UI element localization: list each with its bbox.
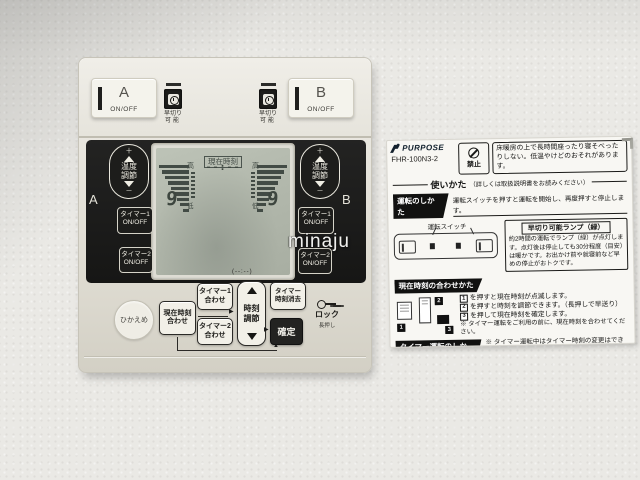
- operation-section: 運転のしかた 運転スイッチを押すと運転を開始し、再度押すと停止します。 運転スイ…: [393, 190, 628, 274]
- up-triangle-icon: [124, 156, 134, 162]
- key-icon: [317, 299, 337, 308]
- minus-label: －: [126, 188, 133, 195]
- panel-top-strip: A ON/OFF 早切り 可能 早切り: [79, 58, 371, 138]
- timer1-set-button[interactable]: タイマー1 合わせ: [197, 283, 233, 310]
- clock-icon: [263, 94, 274, 105]
- low-label-right: 低: [252, 200, 259, 210]
- temp-adjust-a-rocker[interactable]: ＋ 温度 調節 －: [109, 144, 149, 199]
- early-off-caption: 早切り 可能: [259, 111, 277, 125]
- zone-b-label: B: [342, 192, 351, 207]
- up-triangle-icon: [247, 287, 257, 294]
- flow-arrow-right-icon: ▶: [264, 326, 269, 333]
- mini-lamp: [430, 244, 435, 250]
- flow-arrow-right-icon: ▶: [229, 308, 234, 315]
- early-off-lamp-box: 早切り可能ランプ（緑） 約2時間の運転でランプ（緑）が点灯します。点灯後は停止し…: [504, 218, 628, 272]
- power-a-button[interactable]: A ON/OFF: [91, 78, 157, 118]
- zone-a-label: A: [89, 192, 98, 207]
- mini-lamp: [456, 243, 461, 249]
- timer1-onoff-b-button[interactable]: タイマー1 ON/OFF: [298, 207, 334, 234]
- time-setting-title: 現在時刻の合わせかた: [394, 278, 482, 294]
- temp-adjust-label: 温度 調節: [121, 163, 137, 181]
- early-off-caption: 早切り 可能: [164, 111, 182, 125]
- control-dark-area: 現在時刻 高 --:-- 高 低 9: [86, 140, 366, 283]
- hikaeme-button[interactable]: ひかえめ: [114, 300, 154, 340]
- temp-level-b: 9: [266, 188, 279, 210]
- power-b-button[interactable]: B ON/OFF: [288, 78, 354, 118]
- flow-line: [177, 337, 277, 351]
- usage-divider: 使いかた （詳しくは取扱説明書をお読みください）: [393, 175, 627, 192]
- photo-wall: A ON/OFF 早切り 可能 早切り: [0, 0, 640, 480]
- power-b-letter: B: [289, 84, 353, 101]
- lamp-slit: [261, 83, 276, 86]
- down-triangle-icon: [315, 181, 325, 187]
- timer-title: タイマー運転のしかた: [396, 339, 482, 348]
- time-setting-section: 現在時刻の合わせかた 1 2 3 1を押すと現在時刻が点滅します。 2を押すと時…: [394, 272, 629, 338]
- timer-lamp-window: [164, 89, 182, 109]
- lcd-display: 現在時刻 高 --:-- 高 低 9: [151, 143, 295, 280]
- flow-arrow-up-icon: ▲: [273, 343, 279, 349]
- operation-title: 運転のしかた: [393, 193, 449, 219]
- timer1-onoff-a-button[interactable]: タイマー1 ON/OFF: [117, 207, 153, 234]
- label-corner-clip: [622, 138, 633, 149]
- timer-section: タイマー運転のしかた 4 1 2 3 ※ タイマー運転中はタイマー時刻の変更はで…: [396, 336, 632, 348]
- clock-icon: [168, 94, 179, 105]
- purpose-logo-icon: [391, 144, 400, 153]
- up-triangle-icon: [315, 156, 325, 162]
- time-display: --:--: [200, 162, 246, 173]
- warning-text: 床暖房の上で長時間座ったり寝そべったりしない。低温やけどのおそれがあります。: [492, 140, 628, 175]
- operation-diagram: 運転スイッチ: [393, 221, 500, 269]
- temp-adjust-b-rocker[interactable]: ＋ 温度 調節 －: [300, 144, 340, 199]
- timer-lamp-window: [259, 89, 277, 109]
- power-b-onoff-label: ON/OFF: [289, 106, 353, 113]
- time-adjust-label: 時刻 調節: [244, 304, 260, 322]
- minus-label: －: [317, 188, 324, 195]
- instruction-label: PURPOSE FHR-100N3-2 禁止 床暖房の上で長時間座ったり寝そべっ…: [386, 136, 636, 348]
- down-triangle-icon: [124, 181, 134, 187]
- operation-headline: 運転スイッチを押すと運転を開始し、再度押すと停止します。: [453, 192, 628, 217]
- early-off-lamp-b: 早切り 可能: [254, 83, 282, 125]
- low-label-left: 低: [187, 200, 194, 210]
- timer2-onoff-a-button[interactable]: タイマー2 ON/OFF: [119, 247, 153, 273]
- no-symbol-icon: [468, 148, 479, 159]
- plus-label: ＋: [317, 148, 324, 155]
- sticker-header: PURPOSE FHR-100N3-2 禁止 床暖房の上で長時間座ったり寝そべっ…: [391, 140, 628, 177]
- prohibition-box: 禁止: [458, 142, 490, 175]
- remote-panel: A ON/OFF 早切り 可能 早切り: [78, 57, 372, 373]
- long-press-label: 長押し: [319, 321, 336, 329]
- flow-loop-hint: (--:--): [232, 269, 253, 275]
- panel-seam: [84, 356, 366, 357]
- power-a-onoff-label: ON/OFF: [92, 106, 156, 113]
- mini-power-a: [399, 241, 416, 254]
- flow-line: [198, 316, 228, 317]
- lock-button[interactable]: ロック 長押し: [306, 299, 348, 329]
- mini-power-b: [476, 240, 493, 253]
- early-off-lamp-a: 早切り 可能: [159, 83, 187, 125]
- temp-scale-b: [251, 172, 255, 198]
- temp-level-a: 9: [165, 188, 178, 210]
- power-a-letter: A: [92, 84, 156, 101]
- plus-label: ＋: [126, 148, 133, 155]
- brand-name: PURPOSE: [402, 143, 444, 153]
- time-setting-steps: 1を押すと現在時刻が点滅します。 2を押すと時刻を調節できます。（長押しで早送り…: [460, 292, 630, 337]
- time-setting-diagram: 1 2 3: [395, 295, 456, 336]
- temp-adjust-label: 温度 調節: [312, 163, 328, 181]
- current-time-set-button[interactable]: 現在時刻 合わせ: [159, 301, 196, 335]
- model-number: FHR-100N3-2: [391, 154, 455, 164]
- lcd-screen: 現在時刻 高 --:-- 高 低 9: [156, 148, 290, 275]
- timer-time-clear-button[interactable]: タイマー 時刻消去: [270, 282, 306, 310]
- watermark: minaju: [288, 231, 350, 253]
- temp-scale-a: [191, 172, 195, 198]
- timer-steps: ※ タイマー運転中はタイマー時刻の変更はできません。 1を押してタイマー1（2）…: [485, 336, 631, 348]
- lamp-slit: [166, 83, 181, 86]
